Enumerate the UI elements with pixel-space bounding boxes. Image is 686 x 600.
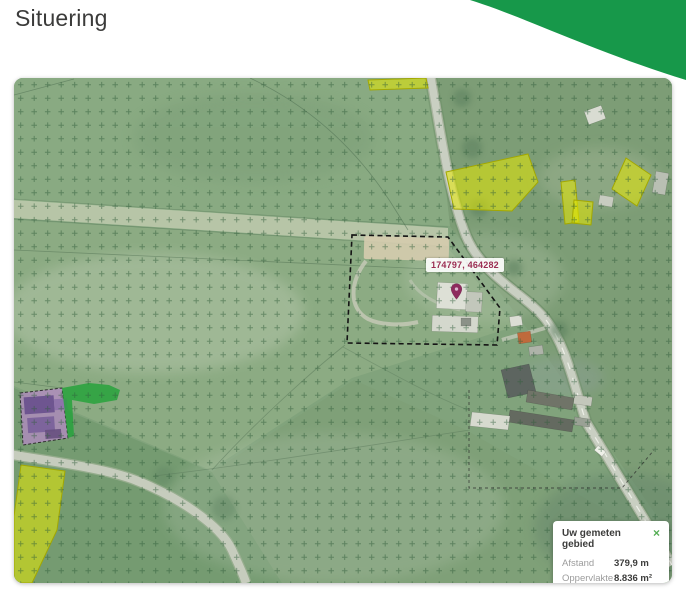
header-swoosh-decoration [470,0,686,80]
map-canvas[interactable] [14,78,672,583]
coordinate-label: 174797, 464282 [426,258,504,272]
tooltip-header: Uw gemeten gebied × [562,528,660,550]
page-title: Situering [15,5,108,32]
map-card: 174797, 464282 Uw gemeten gebied × Afsta… [14,78,672,583]
tooltip-title: Uw gemeten gebied [562,528,653,550]
measurement-row-afstand: Afstand 379,9 m [562,556,660,571]
oppervlakte-label: Oppervlakte [562,571,614,583]
map-pin-icon[interactable] [450,283,463,300]
oppervlakte-value: 8.836 m² [614,571,652,583]
map-grid-overlay [14,78,672,583]
measurement-row-oppervlakte: Oppervlakte 8.836 m² [562,571,660,583]
measurement-tooltip: Uw gemeten gebied × Afstand 379,9 m Oppe… [553,521,669,583]
afstand-value: 379,9 m [614,556,649,571]
close-icon[interactable]: × [653,528,660,538]
afstand-label: Afstand [562,556,614,571]
